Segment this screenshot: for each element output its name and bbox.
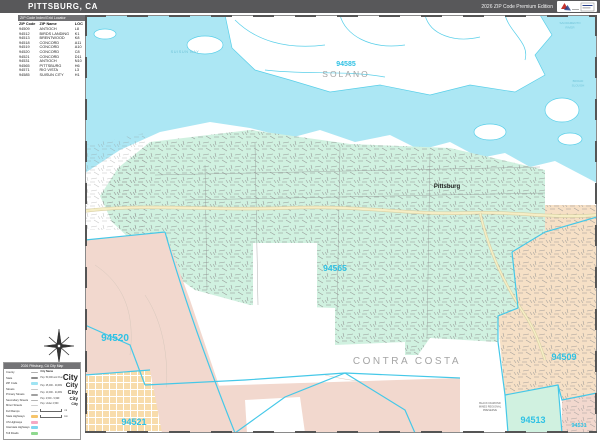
city-size-items: Pop. 50,000 and Over City Pop. 25,000 - …: [40, 374, 78, 406]
browns-island: [545, 98, 579, 122]
poi-black-diamond-2: MINES REGIONAL: [479, 405, 502, 409]
legend-item-label: Streets: [6, 388, 31, 391]
sacramento-river-label-2: RIVER: [565, 26, 575, 30]
legend-item-swatch: [31, 411, 38, 412]
suisun-bay-label: SUISUN BAY: [171, 50, 200, 54]
legend-item-label: Toll Roads: [6, 432, 31, 435]
zip-index-table: ZIP Code ZIP Name LOC 94509 ANTIOCH L8 9…: [18, 22, 85, 78]
city-sample-text: City: [66, 383, 78, 390]
city-pop-label: Pop. 25,000 - 49,999: [40, 385, 65, 387]
city-size-item: Pop. 25,000 - 49,999 City: [40, 383, 78, 390]
legend-item-label: Secondary Streets: [6, 399, 31, 402]
page-title: PITTSBURG, CA: [28, 2, 98, 11]
zip-label-94509: 94509: [551, 352, 576, 362]
scale-bar-unit: mi: [64, 409, 67, 412]
legend-line-items: County State ZIP Code Streets Primary St…: [6, 370, 38, 436]
city-label-pittsburg: Pittsburg: [434, 184, 461, 190]
county-label-solano: SOLANO: [322, 69, 369, 79]
legend-columns: County State ZIP Code Streets Primary St…: [4, 369, 80, 437]
city-sample-text: City: [71, 403, 78, 407]
zip-index-row: 94520 CONCORD C8: [18, 50, 85, 55]
city-size-item: Pop. 2,500 - 9,999 City: [40, 397, 78, 402]
zip-label-94531: 94531: [571, 423, 586, 429]
city-sample-text: City: [63, 374, 78, 382]
legend-item-swatch: [31, 421, 38, 424]
legend-item-swatch: [31, 377, 38, 379]
legend-item-swatch: [31, 415, 38, 418]
scale-bar: km: [40, 415, 78, 418]
publisher-logo-icon: [581, 3, 594, 11]
legend-item-swatch: [31, 382, 38, 385]
legend-item-label: State Highways: [6, 415, 31, 418]
legend-item-swatch: [31, 372, 38, 373]
legend-line-item: Toll Roads: [6, 431, 38, 437]
zip-index-row: 94509 ANTIOCH L8: [18, 27, 85, 32]
logo-text-line: [572, 9, 579, 10]
map-canvas: SUISUN BAY SACRAMENTO RIVER BROAD SLOUGH…: [85, 15, 597, 433]
scale-bar-unit: km: [64, 415, 67, 418]
legend-item-label: County: [6, 371, 31, 374]
island: [558, 133, 582, 145]
zip-code-cell: 94585: [18, 73, 39, 78]
scale-bar-line: [40, 415, 62, 418]
island: [94, 29, 116, 39]
publisher-logo-line2: [583, 7, 591, 8]
zip-index-row: 94585 SUISUN CITY H1: [18, 73, 85, 78]
header-bar: PITTSBURG, CA 2026 ZIP Code Premium Edit…: [0, 0, 600, 13]
zip-label-94565: 94565: [323, 263, 347, 273]
edition-label: 2026 ZIP Code Premium Edition: [481, 4, 553, 10]
zip-index-panel: ZIP Code Index/Grid Locator ZIP Code ZIP…: [18, 15, 85, 78]
legend-item-label: US Highways: [6, 421, 31, 424]
legend-item-swatch: [31, 405, 38, 406]
white-wedge: [245, 397, 305, 433]
scale-bar-line: [40, 409, 62, 412]
compass-rose: [40, 329, 78, 363]
city-sample-text: City: [69, 397, 78, 402]
legend-item-swatch: [31, 426, 38, 429]
zip-label-94521: 94521: [121, 417, 146, 427]
brand-logos: [559, 2, 595, 12]
legend-item-swatch: [31, 400, 38, 401]
poi-black-diamond-1: BLACK DIAMOND: [479, 401, 501, 405]
scale-bars: mi km: [40, 409, 78, 418]
poi-black-diamond-3: PRESERVE: [483, 408, 497, 412]
broad-slough-label-1: BROAD: [573, 79, 585, 83]
legend-item-swatch: [31, 389, 38, 390]
brand-logo-box: [557, 1, 597, 12]
legend-item-label: Primary Streets: [6, 393, 31, 396]
zip-label-94513: 94513: [520, 415, 545, 425]
legend-item-label: State: [6, 377, 31, 380]
legend-item-swatch: [31, 432, 38, 435]
street-texture-baypoint: [85, 133, 145, 230]
county-label-contra-costa: CONTRA COSTA: [353, 356, 461, 367]
zip-label-94520: 94520: [101, 333, 129, 344]
broad-slough-label-2: SLOUGH: [572, 84, 585, 88]
city-pop-label: Pop. 2,500 - 9,999: [40, 398, 69, 400]
unincorporated-pocket: [253, 243, 317, 347]
legend-item-label: Interstate Highways: [6, 426, 31, 429]
city-pop-label: Pop. Under 2,500: [40, 403, 71, 405]
city-size-item: Pop. Under 2,500 City: [40, 403, 78, 407]
legend-item-label: Full Ramps: [6, 410, 31, 413]
legend-panel: 2026 Pittsburg, CA City Map County State…: [3, 362, 81, 440]
zip-name-cell: SUISUN CITY: [39, 73, 74, 78]
publisher-logo-line: [583, 5, 593, 6]
city-pop-label: Pop. 50,000 and Over: [40, 377, 62, 379]
legend-item-label: ZIP Code: [6, 382, 31, 385]
legend-item-label: Minor Streets: [6, 404, 31, 407]
zip-label-94585: 94585: [336, 61, 356, 68]
city-size-item: Pop. 50,000 and Over City: [40, 374, 78, 382]
island: [474, 124, 506, 140]
zip-index-body: 94509 ANTIOCH L8 94512 BIRDS LANDING K1 …: [18, 27, 85, 78]
compass-center: [57, 344, 60, 347]
legend-right-column: City Name Pop. 50,000 and Over City Pop.…: [38, 370, 78, 436]
sacramento-river-label-1: SACRAMENTO: [559, 21, 581, 25]
zip-index-title: ZIP Code Index/Grid Locator: [18, 15, 85, 21]
city-pop-label: Pop. 10,000 - 24,999: [40, 392, 67, 394]
scale-bar: mi: [40, 409, 78, 412]
grid-loc-cell: H1: [74, 73, 85, 78]
legend-item-swatch: [31, 394, 38, 396]
